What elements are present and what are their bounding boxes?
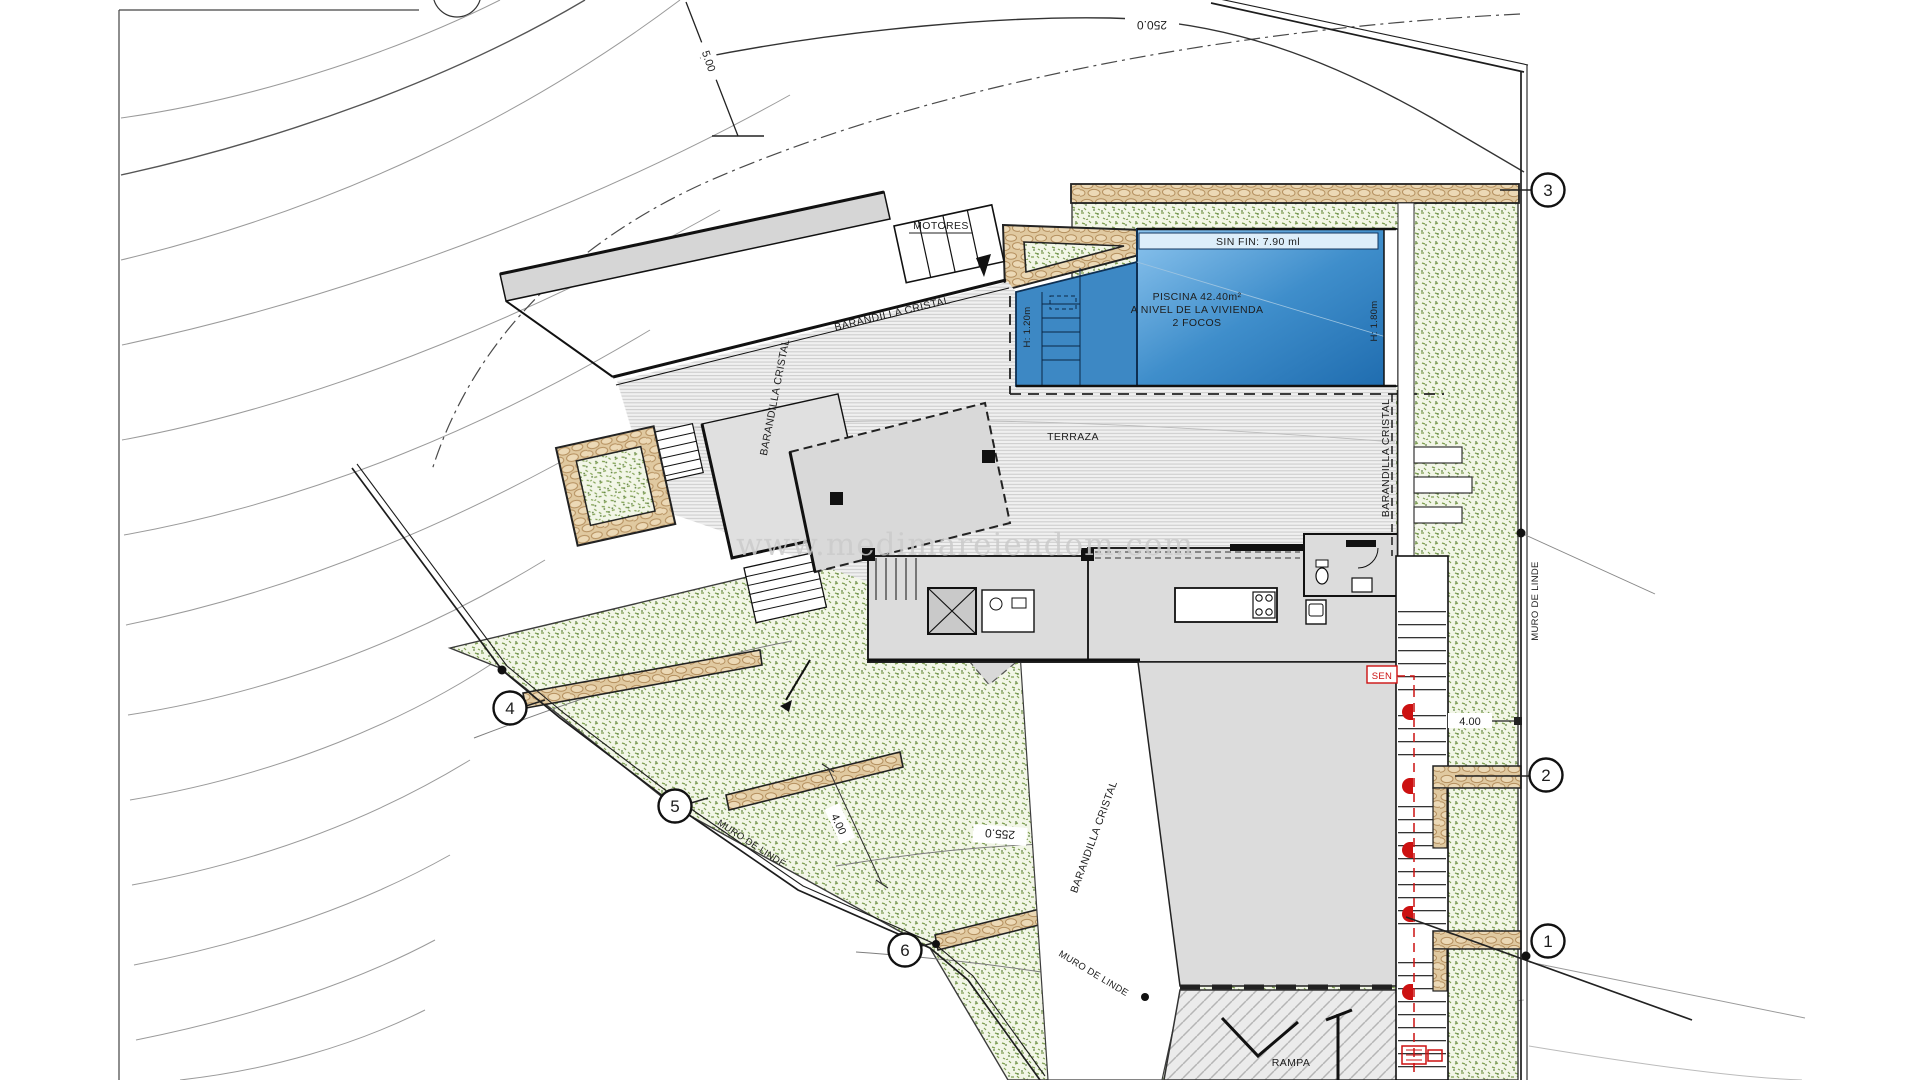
- toilet: [1316, 568, 1328, 584]
- marker-2: 2: [1530, 759, 1563, 792]
- wall-top: [1071, 184, 1519, 203]
- marker-5: 5: [659, 790, 692, 823]
- svg-text:5: 5: [670, 797, 679, 816]
- cooktop: [1253, 592, 1275, 618]
- washbasin: [1352, 578, 1372, 592]
- forecourt: [1138, 662, 1398, 987]
- motores-room: [894, 205, 1004, 283]
- svg-text:255.0: 255.0: [984, 826, 1015, 842]
- pool-subtitle: A NIVEL DE LA VIVIENDA: [1131, 304, 1264, 316]
- svg-text:6: 6: [900, 941, 909, 960]
- dimension-right-value: 4.00: [1459, 716, 1480, 728]
- svg-text:1: 1: [1543, 932, 1552, 951]
- ramp: RAMPA: [1164, 990, 1412, 1080]
- west-planter: [556, 426, 675, 545]
- railing-label-east: BARANDILLA CRISTAL: [1380, 399, 1392, 517]
- sensor-label: SEN: [1372, 671, 1392, 682]
- terrace-label: TERRAZA: [1047, 431, 1099, 443]
- contour-label-250: 250.0: [1125, 17, 1179, 35]
- boundary-wall-label-east: MURO DE LINDE: [1530, 561, 1541, 640]
- pool-title: PISCINA 42.40m²: [1153, 291, 1242, 303]
- marker-1: 1: [1532, 925, 1565, 958]
- svg-text:250.0: 250.0: [1137, 18, 1167, 32]
- pool-edge-label: SIN FIN: 7.90 ml: [1216, 236, 1300, 248]
- marker-3: 3: [1532, 174, 1565, 207]
- marker-4: 4: [494, 692, 527, 725]
- guest-wc: [982, 590, 1034, 632]
- svg-text:3: 3: [1543, 181, 1552, 200]
- motores-label: MOTORES: [913, 220, 969, 232]
- site-plan-canvas: 5.00 4.00 255.0 250.0: [0, 0, 1920, 1080]
- contour-label-255: 255.0: [972, 824, 1027, 846]
- svg-text:4: 4: [505, 699, 514, 718]
- pool-depth-deep: H: 1.80m: [1369, 301, 1380, 342]
- pool-overflow-channel: [1384, 229, 1398, 386]
- pool-note: 2 FOCOS: [1173, 317, 1222, 329]
- marker-6: 6: [889, 934, 922, 967]
- entry-rooms: [868, 556, 1088, 662]
- stair-wall-upper: [1433, 766, 1521, 788]
- svg-text:2: 2: [1541, 766, 1550, 785]
- elevator: [928, 588, 976, 634]
- watermark: www.medimareiendom.com: [736, 527, 1194, 563]
- ramp-label: RAMPA: [1272, 1057, 1311, 1069]
- pool-depth-shallow: H: 1.20m: [1022, 307, 1033, 348]
- contour-250: [700, 18, 1524, 172]
- stair-wall-lower: [1433, 931, 1521, 949]
